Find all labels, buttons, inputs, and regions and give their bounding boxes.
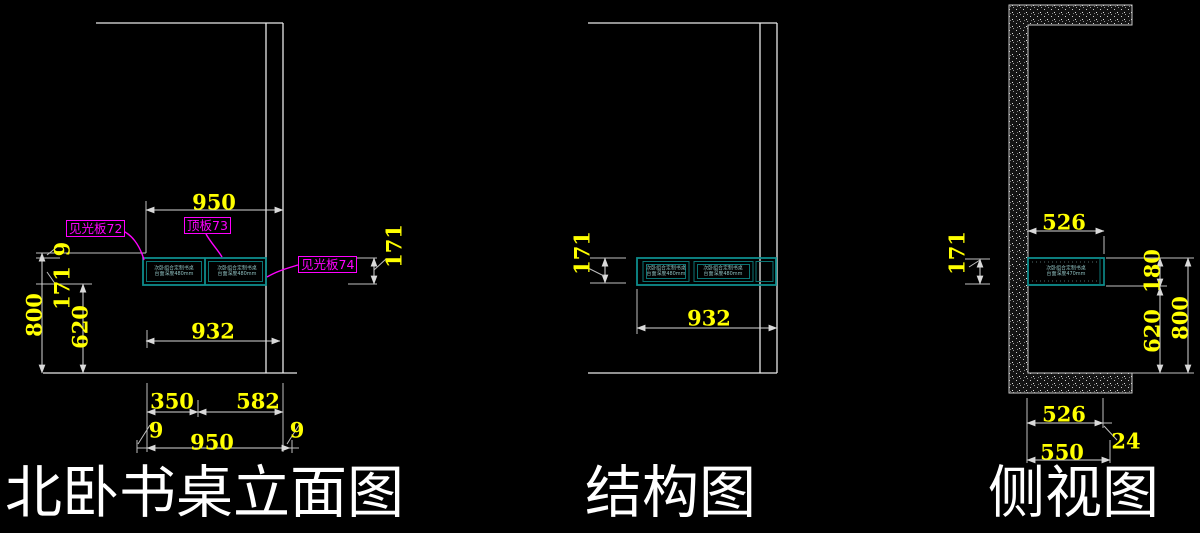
side-title: 侧视图 [988, 462, 1159, 525]
dim-top-width: 950 [192, 190, 236, 215]
elevation-cabinet-note-2: 次卧组合定制书桌 台面深度480mm [217, 266, 257, 277]
structure-view-linework [586, 23, 777, 373]
dim-side-bottom-depth: 526 [1042, 402, 1086, 427]
note-line2: 台面深度470mm [1046, 271, 1086, 277]
dim-apron-height-left: 171 [50, 266, 75, 310]
dim-desk-width: 932 [191, 319, 235, 344]
structure-cabinet-note-1: 次卧组合定制书桌 台面深度480mm [646, 266, 686, 277]
side-wall-hatched [1009, 5, 1132, 393]
note-line2: 台面深度480mm [154, 271, 194, 277]
side-cabinet-note: 次卧组合定制书桌 台面深度470mm [1046, 266, 1086, 277]
dim-side-apron: 171 [945, 231, 970, 275]
note-line2: 台面深度480mm [646, 271, 686, 277]
dim-seg-350: 350 [150, 389, 194, 414]
dim-structure-apron: 171 [570, 231, 595, 275]
dim-gap-right: 9 [290, 418, 305, 443]
note-line2: 台面深度480mm [217, 271, 257, 277]
dim-bottom-width: 950 [190, 430, 234, 455]
dim-side-desk-zone: 180 [1140, 249, 1165, 293]
dim-total-height: 800 [22, 293, 47, 337]
dim-side-total: 800 [1168, 296, 1193, 340]
panel-label-73: 顶板73 [184, 217, 231, 234]
structure-title: 结构图 [585, 462, 756, 525]
cad-drawing-canvas: 950 932 800 620 9 171 171 350 582 9 950 … [0, 0, 1200, 533]
dim-structure-width: 932 [687, 306, 731, 331]
dim-gap-left: 9 [149, 418, 164, 443]
dim-side-top-depth: 526 [1042, 210, 1086, 235]
dim-seg-582: 582 [236, 389, 280, 414]
dim-apron-height-right: 171 [382, 224, 407, 268]
dim-top-thickness-left: 9 [50, 242, 75, 257]
panel-label-72: 见光板72 [66, 220, 125, 237]
elevation-cabinet-note-1: 次卧组合定制书桌 台面深度480mm [154, 266, 194, 277]
dim-under-height: 620 [68, 305, 93, 349]
dim-side-back-panel: 24 [1111, 429, 1140, 454]
structure-cabinet-note-2: 次卧组合定制书桌 台面深度480mm [703, 266, 743, 277]
elevation-title: 北卧书桌立面图 [5, 462, 404, 525]
note-line2: 台面深度480mm [703, 271, 743, 277]
panel-label-74: 见光板74 [298, 256, 357, 273]
structure-wall-lines [588, 23, 777, 373]
elevation-view-linework [36, 23, 386, 453]
dim-side-under: 620 [1140, 309, 1165, 353]
